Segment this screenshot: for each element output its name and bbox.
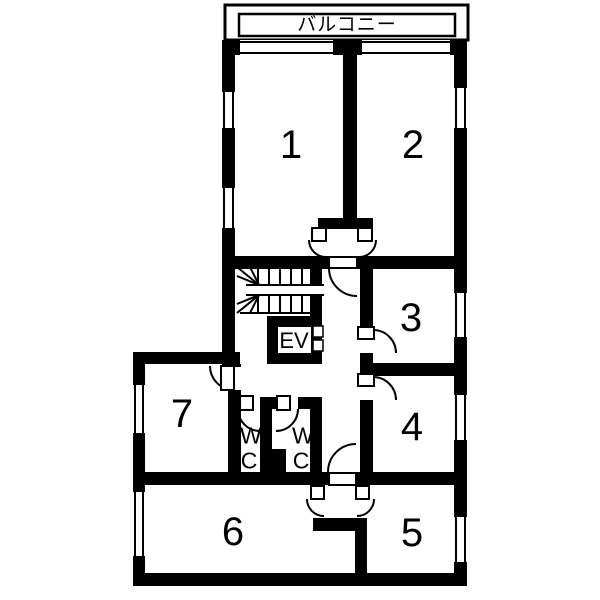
wc-right-label: WC	[292, 424, 310, 475]
wc-right-door-leaf	[277, 396, 290, 410]
window-icon	[454, 293, 467, 337]
room-4-label: 4	[401, 407, 423, 447]
elevator-door-icon	[313, 340, 323, 351]
room-7-label: 7	[171, 394, 193, 434]
wc-left-label: WC	[240, 424, 258, 475]
window-icon	[362, 40, 450, 55]
room4-door-leaf	[358, 374, 374, 386]
room6-door-leaf	[311, 486, 324, 499]
room-2-label: 2	[402, 125, 424, 165]
lower-hall-door-leaf	[329, 473, 356, 485]
room-5-label: 5	[401, 513, 423, 553]
balcony-label: バルコニー	[297, 16, 397, 35]
room2-door-leaf	[358, 228, 372, 241]
window-icon	[222, 92, 235, 128]
window-icon	[222, 188, 235, 228]
window-icon	[133, 385, 145, 433]
upper-hall-door-leaf	[329, 257, 357, 268]
room-1-label: 1	[280, 125, 302, 165]
elevator-door-icon	[313, 326, 323, 337]
floor-background	[0, 0, 600, 600]
window-icon	[454, 88, 467, 128]
floor-plan: バルコニー 1 2 3 4 5 6 7 EV WC WC	[0, 0, 600, 600]
room3-door-leaf	[358, 327, 374, 339]
elevator-label: EV	[279, 330, 308, 352]
floor-plan-drawing	[0, 0, 600, 600]
room7-door-leaf	[221, 366, 234, 390]
window-icon	[454, 395, 467, 440]
room1-door-leaf	[312, 228, 326, 241]
wc-left-door-leaf	[240, 396, 253, 410]
window-icon	[454, 517, 467, 562]
room5-door-leaf	[356, 486, 369, 499]
window-icon	[133, 492, 145, 556]
room-6-label: 6	[222, 512, 244, 552]
window-icon	[240, 40, 333, 55]
room-3-label: 3	[400, 298, 422, 338]
